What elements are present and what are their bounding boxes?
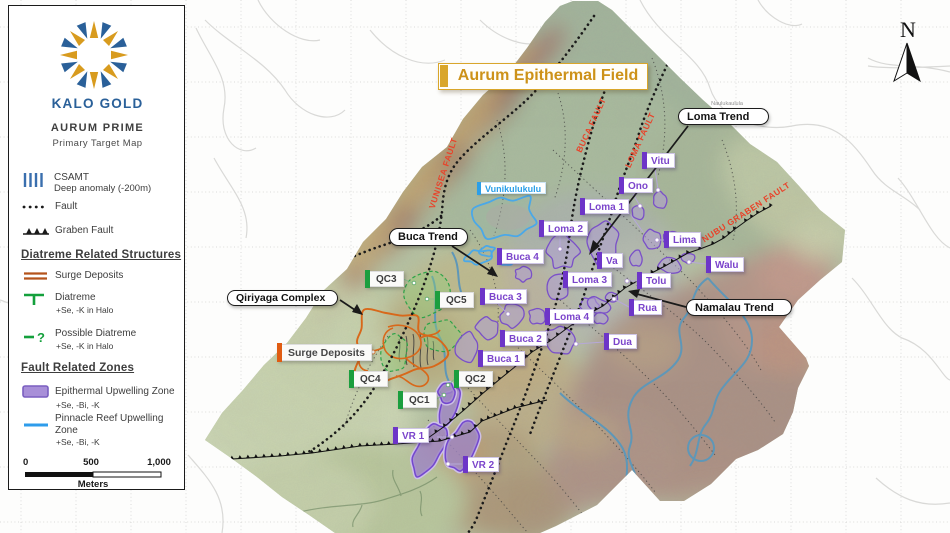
svg-text:0: 0: [23, 457, 28, 468]
svg-text:Naulukaulula: Naulukaulula: [711, 101, 744, 107]
svg-text:500: 500: [83, 457, 99, 468]
svg-text:1,000: 1,000: [147, 457, 171, 468]
svg-text:N: N: [900, 17, 916, 42]
svg-text:?: ?: [37, 330, 45, 345]
svg-text:Meters: Meters: [78, 479, 109, 490]
